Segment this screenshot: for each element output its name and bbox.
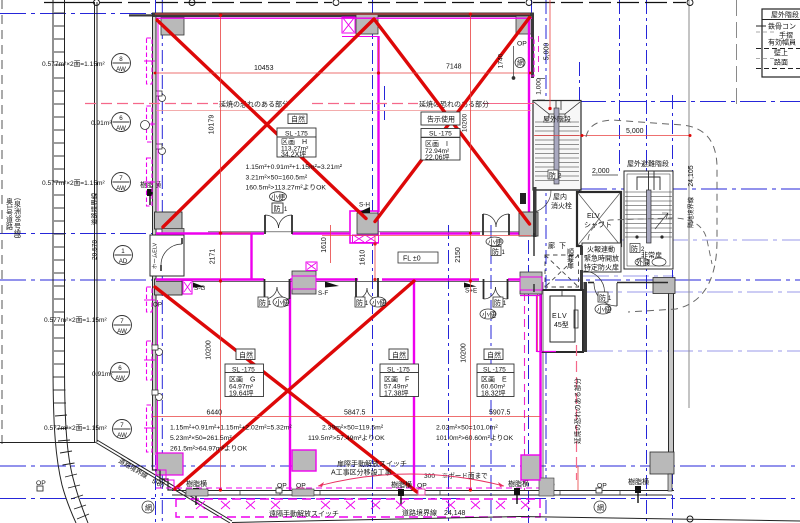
svg-text:0.91m²: 0.91m² (91, 120, 112, 127)
svg-text:特定防火扉: 特定防火扉 (584, 263, 619, 272)
svg-text:小便: 小便 (482, 310, 496, 319)
svg-text:6: 6 (119, 115, 123, 122)
svg-text:網: 網 (517, 58, 524, 67)
svg-text:2171: 2171 (210, 249, 217, 265)
svg-text:シャフト: シャフト (584, 221, 612, 229)
svg-text:24,105: 24,105 (688, 165, 695, 187)
svg-text:0.577m²×2面=1.15m²: 0.577m²×2面=1.15m² (44, 316, 107, 324)
svg-text:AD: AD (119, 258, 128, 265)
svg-text:外開: 外開 (636, 258, 650, 267)
svg-text:壁上: 壁上 (774, 48, 788, 57)
svg-text:10453: 10453 (254, 65, 274, 72)
svg-text:AW: AW (115, 375, 125, 382)
svg-text:防: 防 (356, 298, 363, 307)
svg-text:区画 G: 区画 G (229, 376, 255, 384)
svg-text:屋内: 屋内 (553, 192, 567, 201)
svg-text:261.5m²>64.97m²よりOK: 261.5m²>64.97m²よりOK (170, 445, 248, 453)
svg-text:7: 7 (120, 318, 124, 325)
svg-text:20.578: 20.578 (92, 240, 99, 260)
svg-text:防: 防 (494, 298, 501, 307)
svg-text:順要扉: 順要扉 (567, 248, 575, 270)
svg-text:樹脂横: 樹脂横 (628, 477, 649, 486)
svg-text:AW: AW (116, 66, 126, 73)
svg-text:OP: OP (417, 483, 427, 490)
svg-text:網: 網 (597, 503, 604, 512)
svg-text:17.38坪: 17.38坪 (384, 390, 409, 398)
svg-text:小便: 小便 (271, 193, 285, 202)
svg-text:防: 防 (599, 293, 606, 302)
svg-text:防: 防 (631, 244, 638, 253)
svg-text:1610: 1610 (321, 237, 328, 253)
svg-text:延焼の恐れのある部分: 延焼の恐れのある部分 (419, 100, 489, 109)
svg-text:10200: 10200 (461, 343, 468, 363)
svg-text:AW: AW (117, 432, 127, 439)
svg-text:自然: 自然 (392, 351, 406, 360)
svg-text:5847.5: 5847.5 (344, 410, 366, 417)
svg-text:道路境界線: 道路境界線 (90, 192, 99, 225)
svg-text:防: 防 (259, 298, 266, 307)
svg-text:自然: 自然 (239, 351, 253, 360)
svg-text:SL -175: SL -175 (285, 131, 308, 138)
svg-text:道路境界線 24,148: 道路境界線 24,148 (402, 508, 466, 517)
svg-text:小便: 小便 (597, 305, 611, 314)
svg-text:45型: 45型 (554, 320, 569, 329)
svg-text:1740: 1740 (498, 53, 505, 68)
svg-text:AW: AW (117, 328, 127, 335)
svg-text:101.0m²>60.60m²よりOK: 101.0m²>60.60m²よりOK (436, 434, 514, 442)
svg-text:5,000: 5,000 (626, 128, 644, 135)
svg-text:0.577m²×2面=1.15m²: 0.577m²×2面=1.15m² (42, 179, 105, 187)
svg-text:樹脂横: 樹脂横 (391, 480, 412, 489)
svg-text:屋外避難階段: 屋外避難階段 (627, 159, 669, 168)
svg-text:8: 8 (119, 56, 123, 63)
svg-text:0.577m²×2面=1.15m²: 0.577m²×2面=1.15m² (44, 424, 107, 432)
svg-text:6440: 6440 (207, 410, 223, 417)
svg-text:ELV: ELV (587, 213, 600, 220)
svg-text:AW: AW (116, 185, 126, 192)
svg-text:防: 防 (492, 247, 499, 256)
svg-text:鉄骨コン: 鉄骨コン (768, 22, 796, 31)
svg-text:SL -175: SL -175 (429, 131, 452, 138)
svg-text:2150: 2150 (455, 247, 462, 263)
svg-text:1,000: 1,000 (536, 78, 543, 95)
svg-text:AW: AW (116, 125, 126, 132)
svg-text:防: 防 (549, 171, 556, 180)
svg-text:S+E: S+E (465, 288, 477, 295)
svg-text:7148: 7148 (446, 64, 462, 71)
svg-text:火報連動: 火報連動 (587, 245, 615, 254)
svg-text:6: 6 (118, 365, 122, 372)
svg-text:1.15m²+0.91m²+1.15m²=3.21m²: 1.15m²+0.91m²+1.15m²=3.21m² (246, 164, 343, 171)
svg-text:消火栓: 消火栓 (551, 201, 572, 210)
svg-text:自然: 自然 (291, 115, 305, 124)
svg-text:防: 防 (274, 204, 281, 213)
svg-text:S-H: S-H (359, 202, 370, 209)
svg-text:7: 7 (120, 422, 124, 429)
svg-text:隣地境界線: 隣地境界線 (687, 197, 695, 228)
svg-text:5907.5: 5907.5 (489, 410, 511, 417)
svg-text:屋外階段: 屋外階段 (543, 115, 571, 124)
svg-text:1: 1 (121, 248, 125, 255)
svg-text:廊下: 廊下 (548, 241, 570, 250)
svg-text:区画 E: 区画 E (481, 376, 507, 384)
svg-text:延焼の恐れのある部分: 延焼の恐れのある部分 (219, 100, 289, 109)
svg-text:160.5m²>113.27m²よりOK: 160.5m²>113.27m²よりOK (246, 184, 327, 192)
svg-text:告示使用: 告示使用 (427, 115, 455, 124)
svg-text:10200: 10200 (462, 114, 469, 133)
svg-text:3.21m²×50=160.5m²: 3.21m²×50=160.5m² (246, 175, 308, 182)
svg-text:1610: 1610 (360, 250, 367, 266)
svg-text:有効幅員: 有効幅員 (768, 38, 796, 47)
svg-text:119.5m²>57.49m²よりOK: 119.5m²>57.49m²よりOK (308, 434, 385, 442)
svg-text:小便: 小便 (275, 298, 289, 307)
svg-text:自然: 自然 (487, 351, 501, 360)
svg-text:路面: 路面 (774, 58, 788, 67)
svg-text:ELV: ELV (552, 313, 568, 320)
svg-text:0.577m²×2面=1.15m²: 0.577m²×2面=1.15m² (42, 60, 105, 68)
svg-text:18.32坪: 18.32坪 (481, 390, 506, 398)
svg-text:2: 2 (558, 173, 562, 180)
svg-text:2.39m²×50=119.5m²: 2.39m²×50=119.5m² (322, 425, 384, 432)
svg-text:遠隔手動解放スイッチ: 遠隔手動解放スイッチ (269, 509, 339, 518)
svg-text:5,000: 5,000 (544, 43, 551, 61)
svg-text:2.02m²×50=101.0m²: 2.02m²×50=101.0m² (436, 425, 498, 432)
svg-text:延焼の恐れのある部分: 延焼の恐れのある部分 (573, 378, 582, 444)
svg-text:屋外階段: 屋外階段 (771, 10, 799, 19)
svg-text:64.97m²: 64.97m² (229, 384, 254, 391)
svg-text:OP: OP (517, 41, 527, 48)
svg-text:22.06坪: 22.06坪 (425, 154, 450, 162)
svg-text:7: 7 (119, 175, 123, 182)
svg-text:手摺: 手摺 (779, 31, 793, 40)
svg-text:樹脂横: 樹脂横 (186, 479, 207, 488)
svg-text:奥1号道路: 奥1号道路 (6, 197, 14, 231)
svg-text:300 ※ボード面まで: 300 ※ボード面まで (424, 472, 488, 480)
svg-text:OP: OP (156, 479, 166, 486)
svg-text:(泉洲36号線): (泉洲36号線) (14, 198, 22, 238)
svg-text:緊急時開放: 緊急時開放 (584, 254, 619, 263)
svg-text:小便: 小便 (488, 238, 502, 247)
svg-text:2,000: 2,000 (592, 168, 610, 175)
svg-text:57.49m²: 57.49m² (384, 384, 409, 391)
svg-text:ホームELV: ホームELV (152, 243, 159, 270)
svg-text:1.15m²+0.91m²+1.15m²+2.02m²=5.: 1.15m²+0.91m²+1.15m²+2.02m²=5.32m² (170, 425, 292, 432)
svg-text:19.64坪: 19.64坪 (229, 390, 254, 398)
svg-text:60.60m²: 60.60m² (481, 384, 506, 391)
svg-text:網: 網 (145, 503, 152, 512)
svg-text:10179: 10179 (209, 115, 216, 135)
svg-text:S-F: S-F (318, 290, 328, 297)
svg-text:区画 I: 区画 I (425, 140, 448, 148)
svg-text:5.23m²×50=261.5m²: 5.23m²×50=261.5m² (170, 435, 232, 442)
svg-text:34.2X坪: 34.2X坪 (281, 151, 306, 159)
svg-text:10200: 10200 (206, 340, 213, 360)
svg-text:扉際手動解放スイッチ: 扉際手動解放スイッチ (337, 459, 407, 468)
svg-text:区画 F: 区画 F (384, 376, 409, 384)
svg-text:OP: OP (153, 302, 162, 309)
svg-text:FL ±0: FL ±0 (403, 256, 421, 263)
svg-text:小便: 小便 (372, 298, 386, 307)
